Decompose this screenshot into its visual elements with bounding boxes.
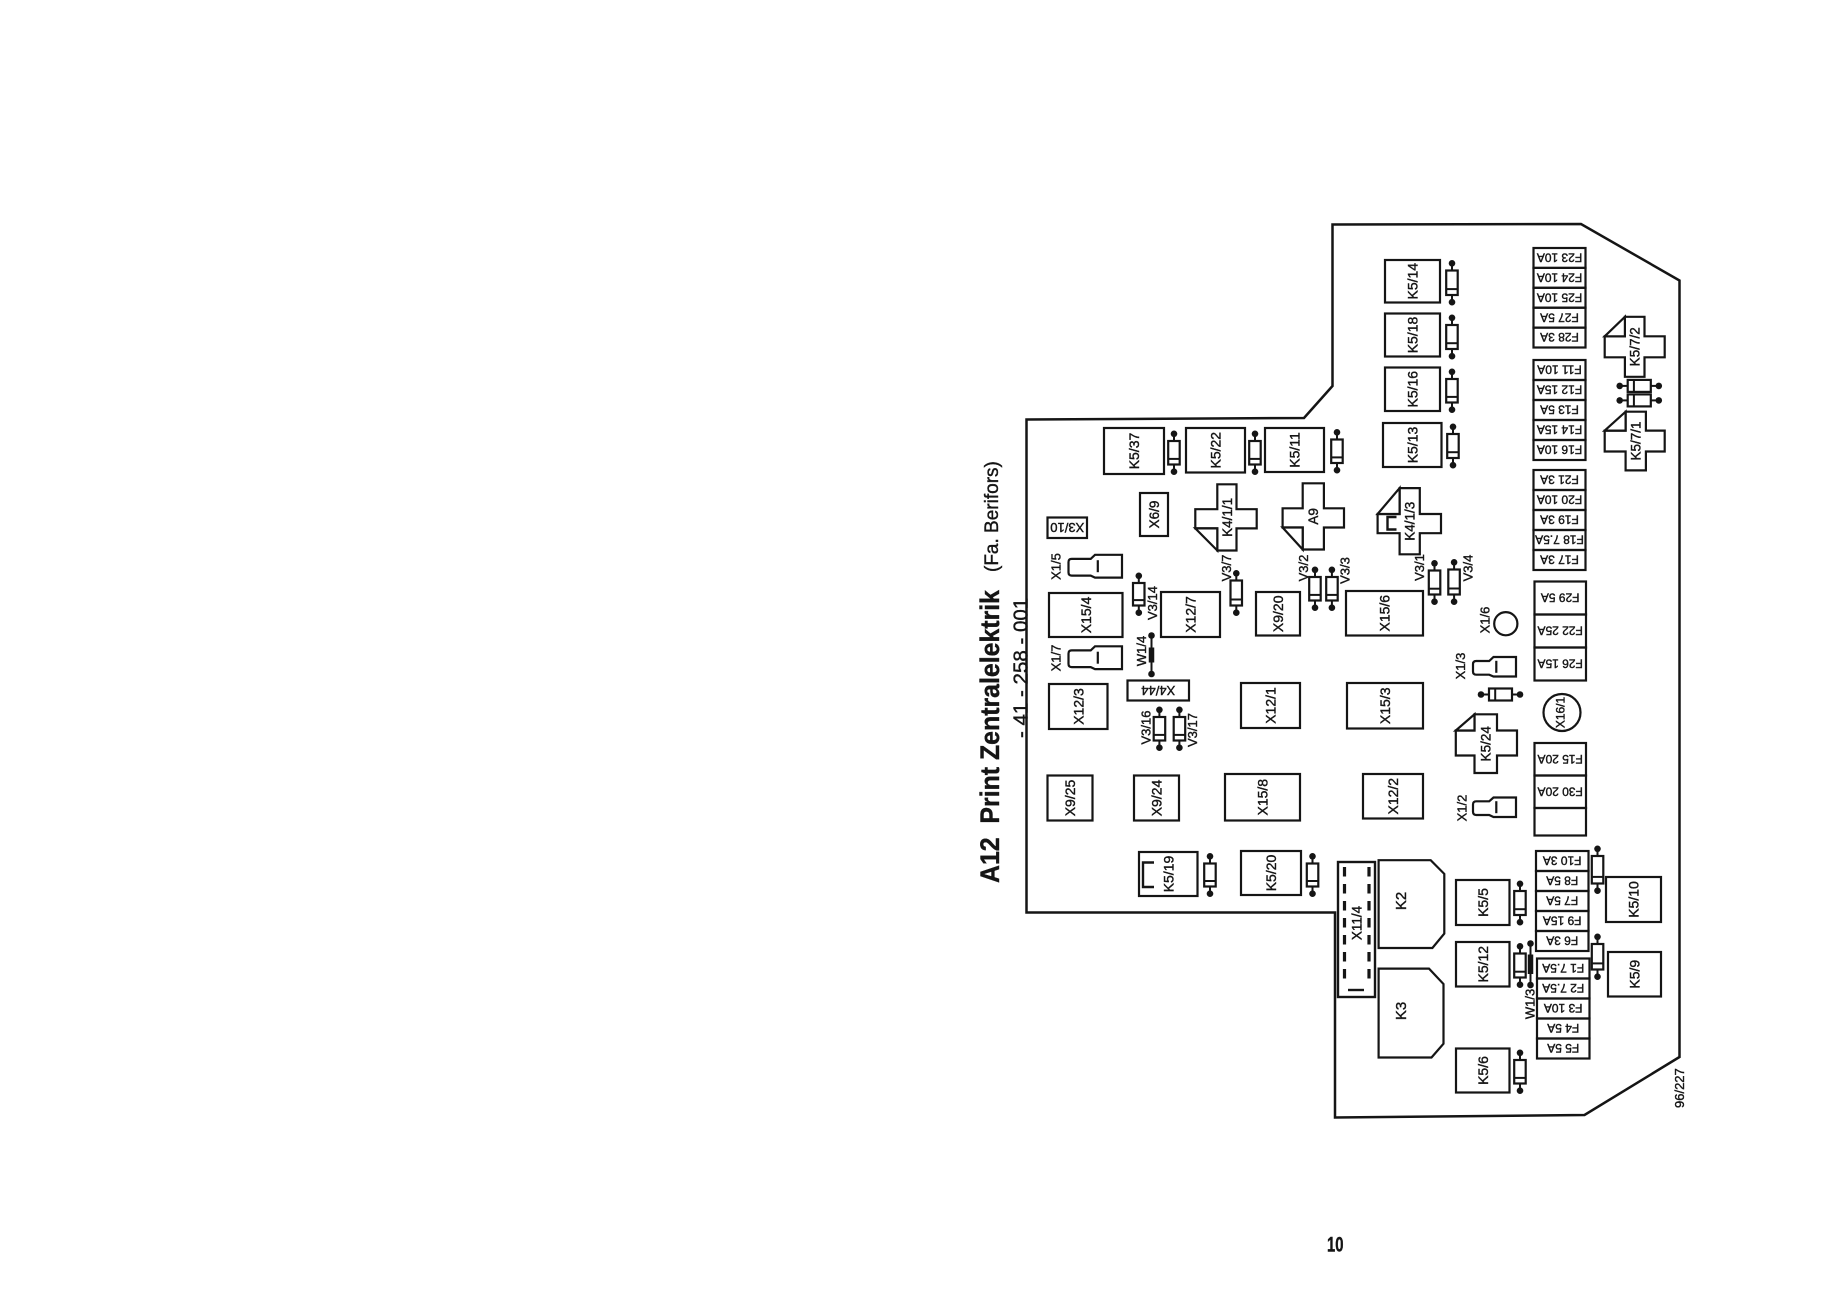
svg-text:V3/1: V3/1 xyxy=(1412,554,1427,581)
svg-text:X9/20: X9/20 xyxy=(1270,595,1286,632)
svg-text:K4/1/3: K4/1/3 xyxy=(1403,502,1418,541)
svg-text:X4/44: X4/44 xyxy=(1141,683,1175,698)
svg-text:F14 15A: F14 15A xyxy=(1537,423,1582,437)
svg-text:X1/6: X1/6 xyxy=(1478,607,1493,634)
svg-text:K5/9: K5/9 xyxy=(1627,960,1643,989)
svg-text:K5/37: K5/37 xyxy=(1126,432,1142,469)
svg-text:(Fa. Berifors): (Fa. Berifors) xyxy=(982,461,1003,572)
svg-text:W1/3: W1/3 xyxy=(1523,989,1538,1019)
svg-text:F30 20A: F30 20A xyxy=(1538,784,1583,798)
svg-text:96/227: 96/227 xyxy=(1672,1068,1687,1108)
svg-text:F28 3A: F28 3A xyxy=(1540,330,1579,344)
svg-text:K4/1/1: K4/1/1 xyxy=(1220,498,1235,537)
svg-text:V3/17: V3/17 xyxy=(1185,713,1200,747)
svg-text:K5/20: K5/20 xyxy=(1263,854,1279,891)
svg-text:X1/2: X1/2 xyxy=(1455,795,1470,822)
svg-text:V3/7: V3/7 xyxy=(1219,555,1234,582)
svg-text:F4 5A: F4 5A xyxy=(1547,1021,1579,1035)
svg-text:F27 5A: F27 5A xyxy=(1540,310,1579,324)
svg-text:F16 10A: F16 10A xyxy=(1537,443,1582,457)
svg-text:- 41 - 258 - 001: - 41 - 258 - 001 xyxy=(1010,598,1033,738)
svg-text:F6 3A: F6 3A xyxy=(1546,934,1578,948)
svg-text:X15/4: X15/4 xyxy=(1078,596,1094,633)
svg-text:F9 15A: F9 15A xyxy=(1543,914,1582,928)
svg-text:X16/1: X16/1 xyxy=(1553,696,1567,728)
svg-text:F8 5A: F8 5A xyxy=(1546,874,1578,888)
svg-text:X1/7: X1/7 xyxy=(1049,645,1064,672)
svg-text:K5/13: K5/13 xyxy=(1404,426,1420,463)
svg-text:X11/4: X11/4 xyxy=(1349,905,1364,940)
svg-text:X1/5: X1/5 xyxy=(1049,553,1064,580)
svg-text:X1/3: X1/3 xyxy=(1453,653,1468,680)
svg-text:F29 5A: F29 5A xyxy=(1541,591,1580,605)
svg-text:X6/9: X6/9 xyxy=(1147,501,1162,529)
svg-text:F5 5A: F5 5A xyxy=(1547,1041,1579,1055)
svg-text:F3 10A: F3 10A xyxy=(1544,1001,1583,1015)
svg-text:F26 15A: F26 15A xyxy=(1538,657,1583,671)
svg-text:X12/3: X12/3 xyxy=(1070,688,1086,725)
svg-text:K5/16: K5/16 xyxy=(1405,371,1421,408)
svg-text:F24 10A: F24 10A xyxy=(1537,271,1582,285)
svg-text:X3/10: X3/10 xyxy=(1050,520,1084,535)
svg-text:K5/6: K5/6 xyxy=(1475,1056,1491,1085)
svg-text:F20 10A: F20 10A xyxy=(1537,493,1582,507)
svg-text:F10 3A: F10 3A xyxy=(1543,854,1582,868)
svg-text:10: 10 xyxy=(1327,1234,1344,1257)
svg-text:F7 5A: F7 5A xyxy=(1546,894,1578,908)
svg-text:F2 7.5A: F2 7.5A xyxy=(1542,981,1584,995)
svg-text:K5/14: K5/14 xyxy=(1405,263,1421,300)
svg-text:F18 7.5A: F18 7.5A xyxy=(1535,533,1584,547)
svg-text:K2: K2 xyxy=(1393,892,1410,910)
svg-text:K5/19: K5/19 xyxy=(1160,855,1176,892)
svg-text:F15 20A: F15 20A xyxy=(1538,752,1583,766)
svg-text:V3/14: V3/14 xyxy=(1145,586,1160,620)
svg-text:A9: A9 xyxy=(1306,508,1321,525)
svg-text:K5/7/2: K5/7/2 xyxy=(1627,327,1642,366)
svg-text:X15/8: X15/8 xyxy=(1255,779,1271,816)
svg-text:F1 7.5A: F1 7.5A xyxy=(1542,961,1584,975)
svg-text:X12/7: X12/7 xyxy=(1183,596,1199,633)
svg-text:A12 Print Zentralelektrik: A12 Print Zentralelektrik xyxy=(975,589,1005,883)
svg-text:K5/5: K5/5 xyxy=(1475,888,1491,917)
svg-text:W1/4: W1/4 xyxy=(1134,636,1149,666)
svg-text:K5/24: K5/24 xyxy=(1479,726,1494,762)
svg-text:X9/24: X9/24 xyxy=(1149,779,1165,816)
svg-text:F12 15A: F12 15A xyxy=(1537,383,1582,397)
svg-text:K5/22: K5/22 xyxy=(1208,432,1224,469)
svg-text:V3/16: V3/16 xyxy=(1139,711,1154,745)
svg-text:K5/11: K5/11 xyxy=(1287,432,1303,468)
svg-text:F11 10A: F11 10A xyxy=(1537,363,1581,377)
svg-text:X15/6: X15/6 xyxy=(1377,595,1393,632)
svg-text:F13 5A: F13 5A xyxy=(1540,403,1579,417)
svg-text:X15/3: X15/3 xyxy=(1377,687,1393,724)
svg-text:F19 3A: F19 3A xyxy=(1540,513,1579,527)
svg-text:V3/4: V3/4 xyxy=(1461,555,1476,582)
svg-text:V3/2: V3/2 xyxy=(1296,555,1311,582)
svg-text:K5/18: K5/18 xyxy=(1405,316,1421,353)
svg-text:K5/12: K5/12 xyxy=(1475,946,1491,983)
svg-text:V3/3: V3/3 xyxy=(1338,557,1353,584)
svg-text:F21 3A: F21 3A xyxy=(1540,473,1579,487)
svg-text:F22 25A: F22 25A xyxy=(1538,624,1583,638)
svg-text:K5/10: K5/10 xyxy=(1626,881,1642,918)
svg-text:F25 10A: F25 10A xyxy=(1537,290,1582,304)
svg-text:F17 3A: F17 3A xyxy=(1540,553,1579,567)
svg-text:X9/25: X9/25 xyxy=(1062,779,1078,816)
svg-text:K3: K3 xyxy=(1393,1002,1410,1020)
svg-text:X12/1: X12/1 xyxy=(1263,687,1279,724)
svg-text:K5/7/1: K5/7/1 xyxy=(1629,421,1644,460)
svg-text:X12/2: X12/2 xyxy=(1385,778,1401,815)
svg-text:F23 10A: F23 10A xyxy=(1537,251,1582,265)
